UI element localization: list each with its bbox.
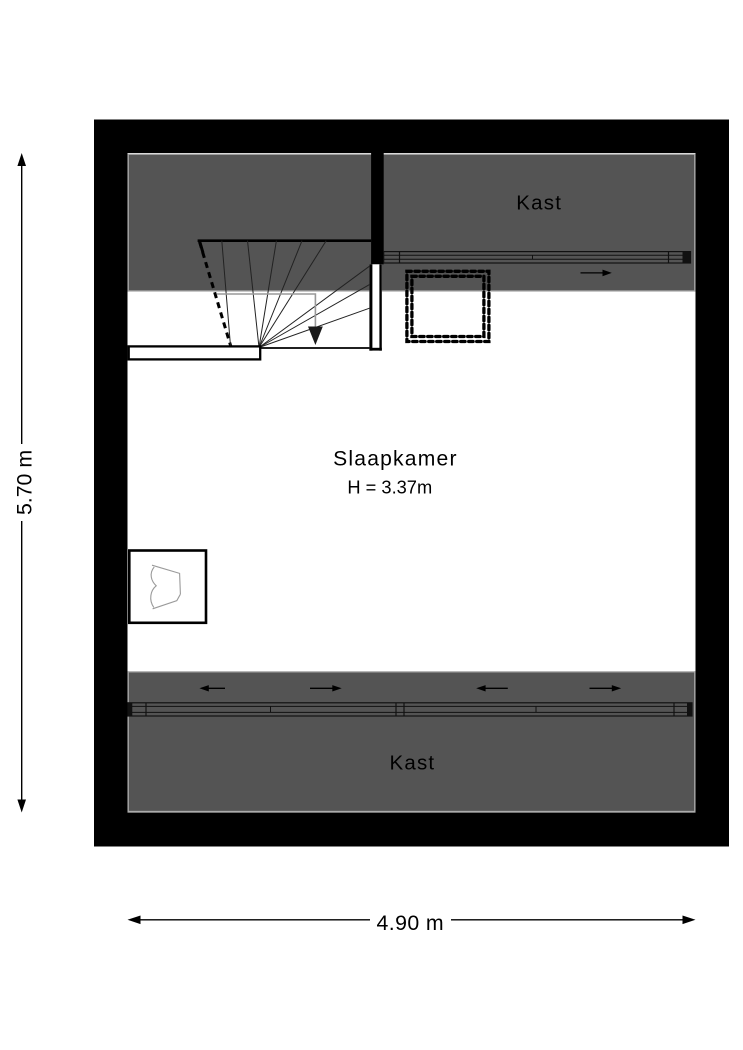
svg-text:H = 3.37m: H = 3.37m xyxy=(347,477,432,498)
svg-text:5.70 m: 5.70 m xyxy=(13,450,37,515)
svg-text:Kast: Kast xyxy=(516,192,562,215)
svg-text:Slaapkamer: Slaapkamer xyxy=(333,447,458,470)
svg-text:4.90 m: 4.90 m xyxy=(377,911,445,935)
svg-text:Kast: Kast xyxy=(389,752,435,775)
